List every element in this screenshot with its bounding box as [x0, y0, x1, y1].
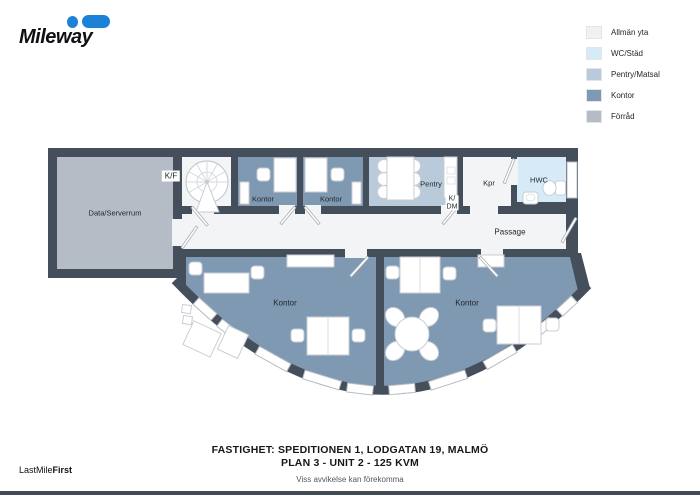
- label-pentry: Pentry: [420, 180, 442, 189]
- desk: [274, 158, 296, 192]
- bottom-edge-bar: [0, 491, 700, 495]
- sink-icon: [523, 192, 538, 204]
- label-kdm-line2: DM: [447, 203, 458, 211]
- chair: [257, 168, 270, 181]
- label-data-serverrum: Data/Serverrum: [89, 209, 142, 218]
- label-kpr: Kpr: [483, 179, 495, 188]
- label-kontor-large-left: Kontor: [273, 299, 297, 308]
- label-passage: Passage: [494, 228, 525, 237]
- disclaimer: Viss avvikelse kan förekomma: [0, 475, 700, 484]
- chair: [331, 168, 344, 181]
- left-wall: [178, 249, 186, 289]
- label-kdm-line1: K/: [447, 195, 458, 203]
- label-kdm: K/ DM: [446, 195, 459, 210]
- label-kf: K/F: [162, 171, 180, 182]
- kitchen-counter: [444, 157, 457, 198]
- round-table: [395, 317, 429, 351]
- door-panel: [352, 182, 361, 204]
- property-title: FASTIGHET: SPEDITIONEN 1, LODGATAN 19, M…: [0, 444, 700, 456]
- divider-wall: [376, 249, 384, 387]
- lastmilefirst-tagline: LastMileFirst: [19, 465, 72, 475]
- tagline-bold: First: [53, 465, 73, 475]
- label-kontor-small-left: Kontor: [252, 195, 274, 204]
- plan-unit-area: PLAN 3 - UNIT 2 - 125 KVM: [0, 457, 700, 469]
- tagline-regular: LastMile: [19, 465, 53, 475]
- label-kontor-small-right: Kontor: [320, 195, 342, 204]
- pentry-table-and-chairs: [378, 157, 421, 200]
- desk: [305, 158, 327, 192]
- label-kontor-large-right: Kontor: [455, 299, 479, 308]
- passage-bottom-wall: [173, 249, 578, 257]
- label-hwc: HWC: [530, 176, 548, 185]
- door-panel: [240, 182, 249, 204]
- floor-plan: [0, 0, 700, 495]
